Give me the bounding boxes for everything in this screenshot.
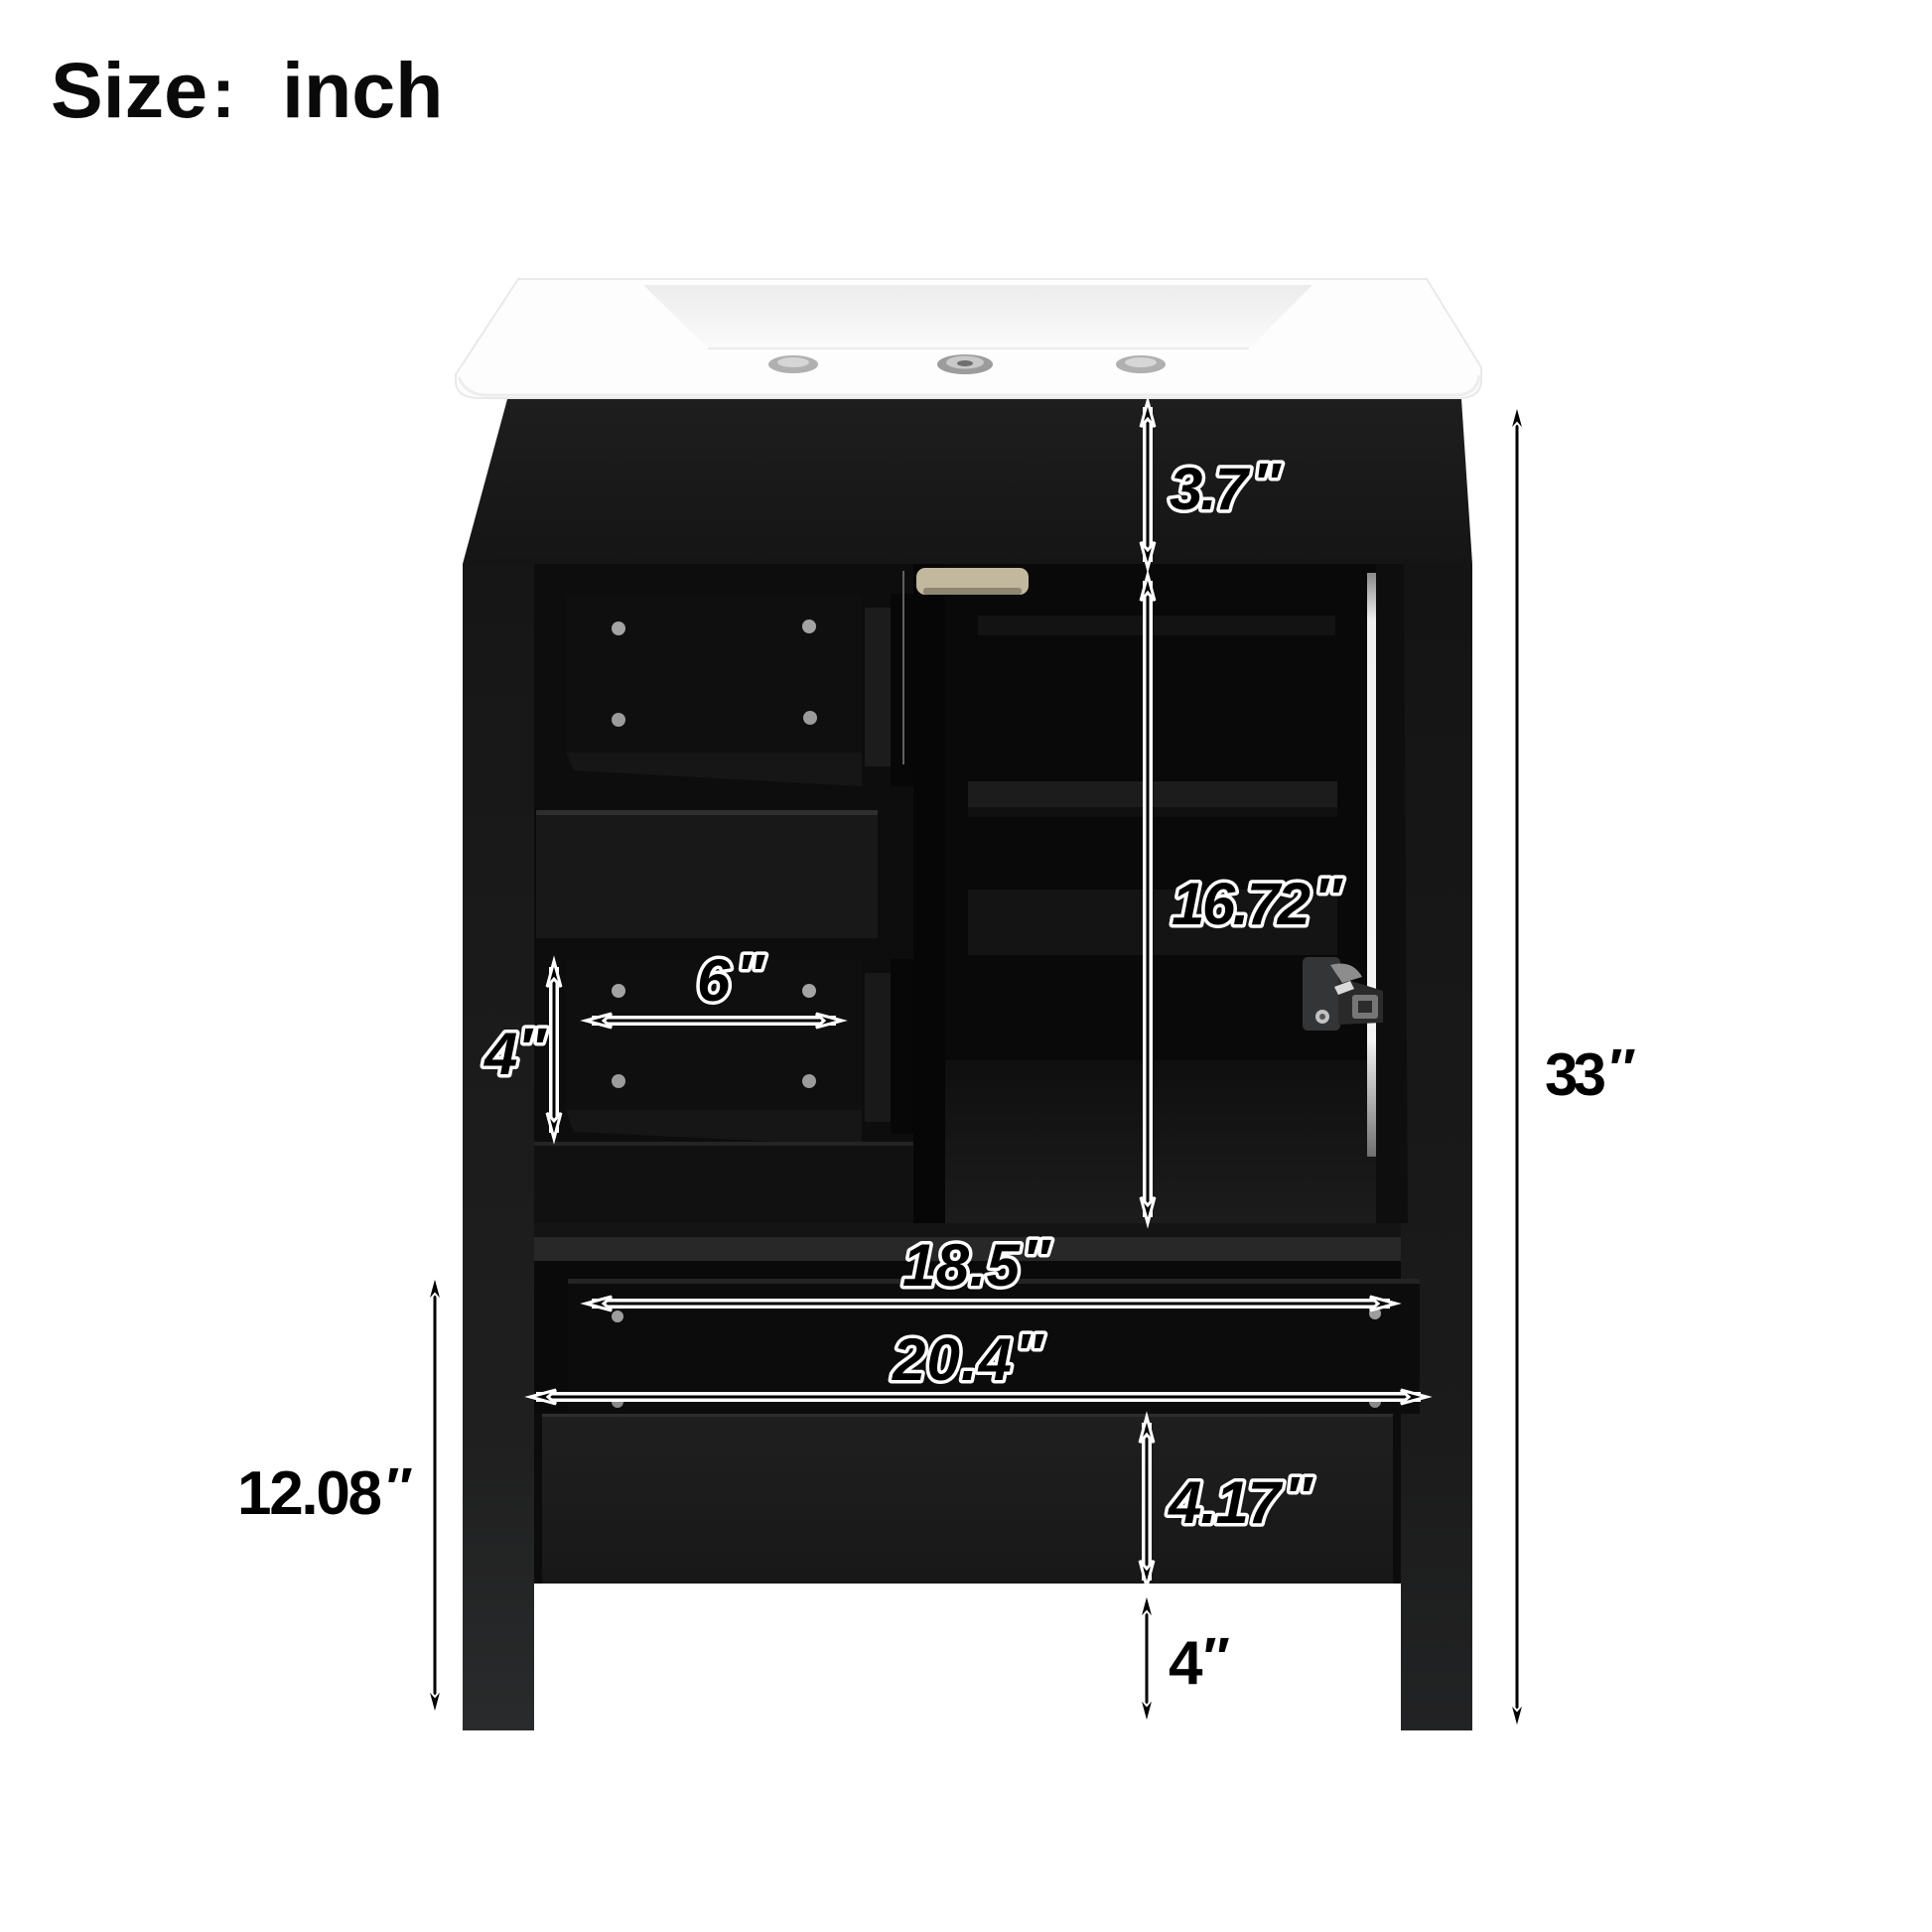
svg-text:3.7: 3.7 [1170,456,1251,522]
svg-text:20.4: 20.4 [892,1326,1012,1393]
svg-text:″: ″ [1016,1321,1044,1384]
svg-text:″: ″ [1203,1625,1230,1688]
svg-text:″: ″ [1609,1036,1636,1099]
svg-text:12.08: 12.08 [237,1459,382,1528]
svg-text:4: 4 [1169,1629,1203,1698]
svg-text:″: ″ [1023,1227,1051,1290]
svg-text:4.17: 4.17 [1168,1469,1284,1536]
svg-text:4: 4 [483,1021,517,1087]
svg-text:6: 6 [697,947,731,1014]
svg-text:″: ″ [518,1016,547,1078]
svg-text:″: ″ [1314,866,1343,928]
svg-text:Size: Size [51,46,207,134]
svg-text::: : [211,54,235,133]
svg-text:18.5: 18.5 [902,1232,1022,1299]
svg-text:″: ″ [737,942,765,1005]
svg-text:inch: inch [282,46,443,134]
svg-text:″: ″ [1253,451,1282,513]
svg-text:16.72: 16.72 [1172,871,1311,937]
svg-text:33: 33 [1545,1041,1606,1108]
svg-text:″: ″ [1285,1464,1313,1527]
svg-text:″: ″ [386,1455,413,1518]
